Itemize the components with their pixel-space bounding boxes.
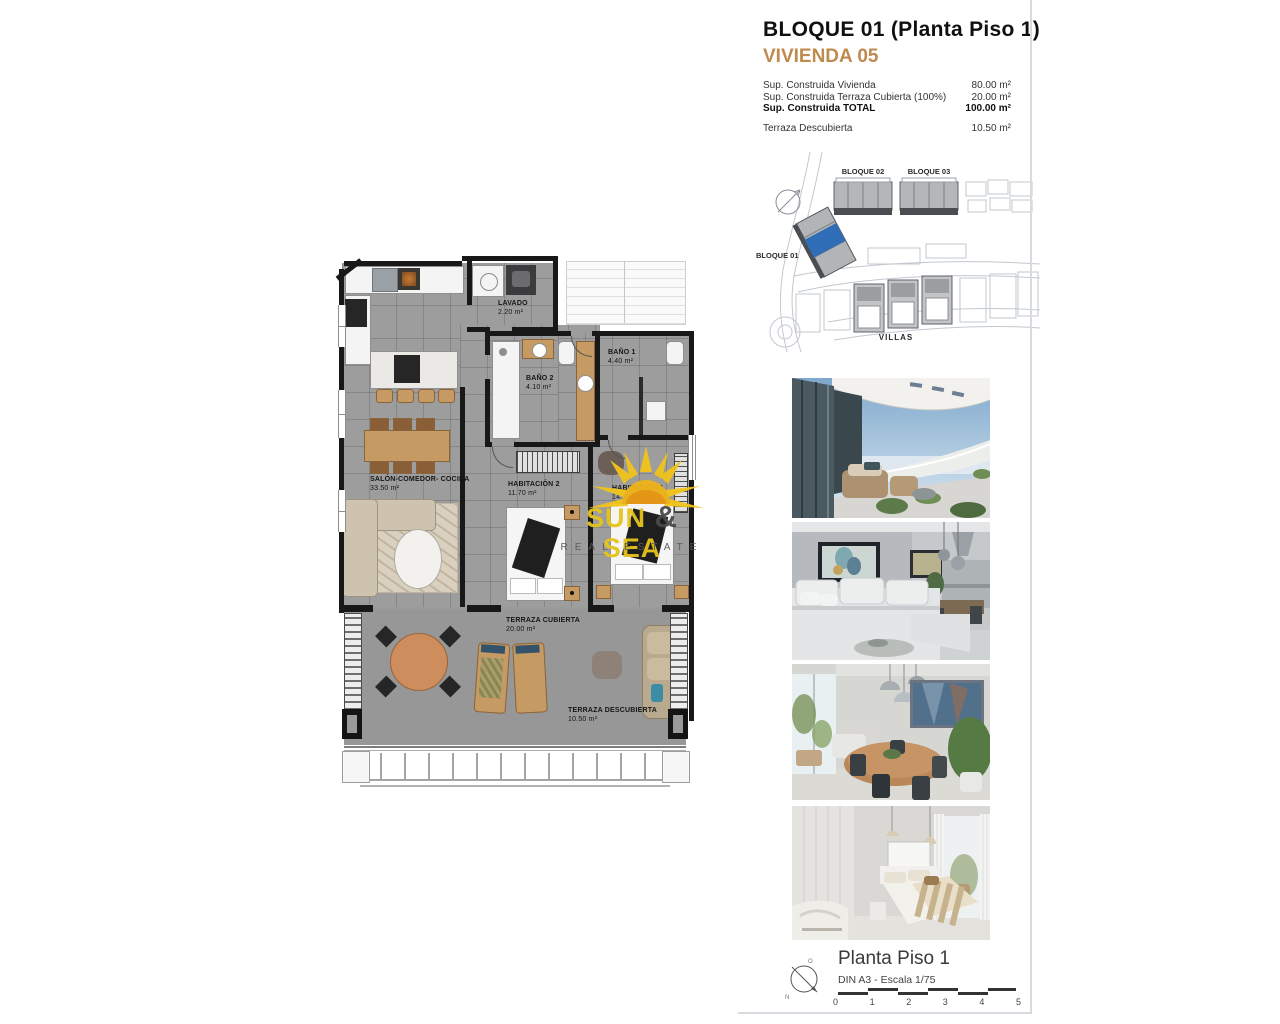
- bloque01-label: BLOQUE 01: [756, 251, 799, 260]
- stairwell: [566, 261, 686, 325]
- surface-row: Terraza Descubierta10.50 m²: [763, 123, 1011, 135]
- room-label-habitacion2: HABITACIÓN 211.70 m²: [508, 481, 560, 498]
- bloque02-building: [834, 178, 892, 215]
- brochure-page: LAVADO2.20 m² BAÑO 24.10 m² BAÑO 14.40 m…: [0, 0, 1280, 1024]
- nightstand: [596, 585, 611, 599]
- sink: [577, 375, 594, 392]
- bar-stool: [438, 389, 455, 403]
- dining-room-photo: [792, 664, 990, 800]
- terrace-railing-right: [670, 613, 688, 711]
- scale-ticks: 01 23 45: [833, 997, 1021, 1007]
- site-compass-icon: [776, 190, 800, 214]
- bar-stool: [418, 389, 435, 403]
- bar-stool: [397, 389, 414, 403]
- watermark-tagline: REAL ESTATE: [560, 542, 704, 553]
- surface-row: Sup. Construida Vivienda80.00 m²: [763, 80, 1011, 92]
- shower: [492, 341, 520, 439]
- dining-chair: [370, 461, 389, 474]
- bloque03-label: BLOQUE 03: [908, 167, 951, 176]
- bloque02-label: BLOQUE 02: [842, 167, 885, 176]
- room-label-salon: SALÓN-COMEDOR- COCINA33.50 m²: [370, 476, 469, 493]
- room-label-terraza-descubierta: TERRAZA DESCUBIERTA10.50 m²: [568, 707, 657, 724]
- sun-and-sea-watermark: SUN & SEA REAL ESTATE: [556, 450, 708, 568]
- footer-scale-label: DIN A3 - Escala 1/75: [838, 974, 935, 986]
- dining-chair: [416, 461, 435, 474]
- bedroom-photo: [792, 806, 990, 940]
- surface-table: Sup. Construida Vivienda80.00 m² Sup. Co…: [763, 80, 1011, 134]
- sun-lounger: [474, 642, 511, 714]
- room-label-terraza-cubierta: TERRAZA CUBIERTA20.00 m²: [506, 617, 580, 634]
- sun-lounger: [512, 642, 548, 714]
- living-room-photo: [792, 522, 990, 660]
- bar-stool: [376, 389, 393, 403]
- pillar: [342, 709, 362, 739]
- terrace-exterior-photo: [792, 378, 990, 518]
- toilet: [666, 341, 684, 365]
- pillar: [668, 709, 688, 739]
- page-border-bottom: [738, 1012, 1032, 1014]
- dining-table: [364, 430, 450, 462]
- coffee-table: [394, 529, 442, 589]
- terrace-railing-left: [344, 613, 362, 711]
- dishwasher: [372, 268, 398, 292]
- room-label-lavado: LAVADO2.20 m²: [498, 300, 528, 317]
- room-label-bano2: BAÑO 24.10 m²: [526, 375, 554, 392]
- bloque03-building: [900, 178, 958, 215]
- sink: [532, 343, 547, 358]
- column: [662, 751, 690, 783]
- nightstand: [674, 585, 689, 599]
- washing-machine: [472, 265, 504, 297]
- watermark-words: SUN & SEA: [556, 502, 708, 563]
- page-title: BLOQUE 01 (Planta Piso 1): [763, 18, 1040, 42]
- dryer: [506, 265, 536, 295]
- surface-row: Sup. Construida Terraza Cubierta (100%)2…: [763, 92, 1011, 104]
- pouf-table: [592, 651, 622, 679]
- oven: [398, 268, 420, 290]
- fridge: [345, 299, 367, 327]
- villas-label: VILLAS: [879, 333, 913, 342]
- scale-bar: [838, 988, 1016, 996]
- shower-tray: [646, 401, 666, 421]
- unit-title: VIVIENDA 05: [763, 46, 878, 68]
- page-border-right: [1030, 0, 1032, 1014]
- lower-railing: [356, 753, 674, 781]
- sofa-chaise: [342, 499, 378, 597]
- footer-compass-icon: O N: [784, 955, 824, 1003]
- terrace-table: [390, 633, 448, 691]
- dining-chair: [393, 461, 412, 474]
- room-label-bano1: BAÑO 14.40 m²: [608, 349, 636, 366]
- svg-text:N: N: [785, 995, 789, 1001]
- villas-buildings: [854, 276, 952, 332]
- nightstand: [564, 586, 580, 601]
- surface-row-total: Sup. Construida TOTAL100.00 m²: [763, 103, 1011, 115]
- cooktop: [394, 355, 420, 383]
- footer-title: Planta Piso 1: [838, 948, 950, 970]
- column: [342, 751, 370, 783]
- svg-text:O: O: [808, 959, 813, 965]
- site-plan: BLOQUE 01 BLOQUE 02 BLOQUE 03 VILLAS: [748, 152, 1040, 352]
